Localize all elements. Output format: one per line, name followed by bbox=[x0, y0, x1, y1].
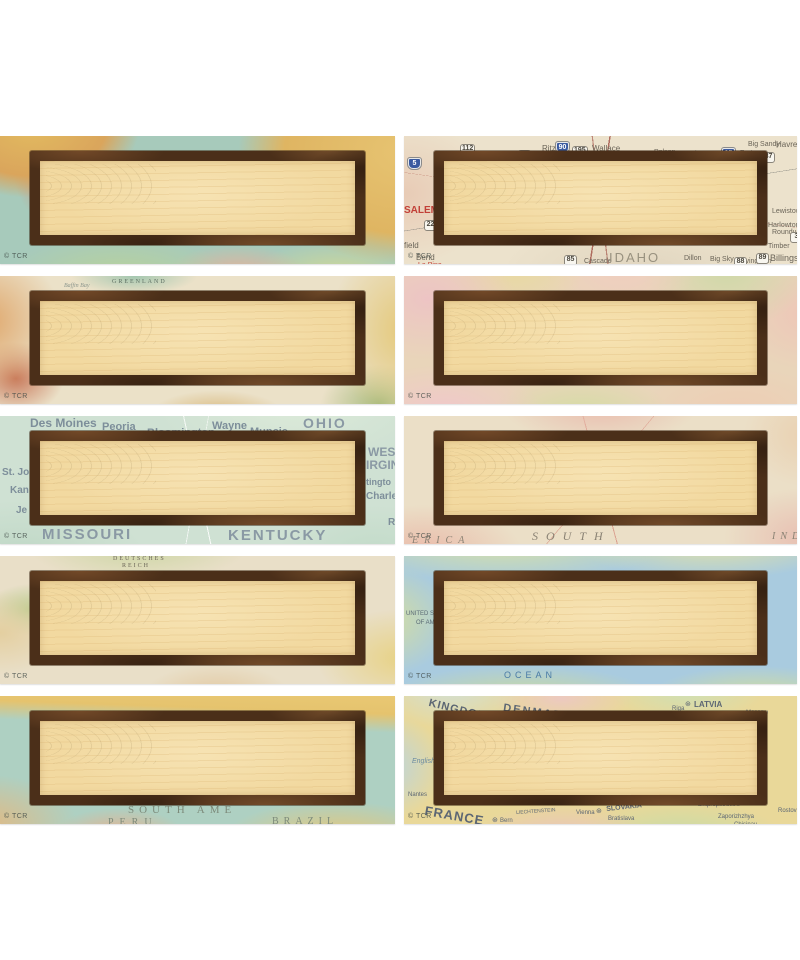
brown-label-frame bbox=[434, 711, 767, 805]
tcr-copyright-mark: © TCR bbox=[408, 253, 432, 260]
map-place-text: SOUTH AME bbox=[128, 805, 236, 816]
tcr-copyright-mark: © TCR bbox=[408, 813, 432, 820]
label-atlas-ocean-map: UNITED STATESOF AMERICAOCEAN© TCR bbox=[404, 556, 797, 684]
map-place-text: ⊛ bbox=[492, 817, 498, 824]
map-place-text: IND bbox=[772, 532, 797, 542]
brown-label-frame bbox=[30, 431, 365, 525]
brown-label-frame bbox=[30, 711, 365, 805]
brown-label-frame bbox=[434, 291, 767, 385]
map-place-text: BRAZIL bbox=[272, 817, 338, 824]
map-place-text: DEUTSCHES bbox=[113, 556, 166, 562]
tcr-copyright-mark: © TCR bbox=[4, 533, 28, 540]
map-place-text: LATVIA bbox=[694, 701, 722, 709]
map-place-text: Vienna bbox=[576, 810, 595, 816]
postmark-arcs-decoration bbox=[46, 724, 156, 764]
map-place-text: REICH bbox=[122, 563, 150, 569]
map-place-text: Billings bbox=[770, 254, 797, 263]
blank-writing-area bbox=[444, 721, 757, 795]
label-vintage-europe-map: DEUTSCHESREICH© TCR bbox=[0, 556, 395, 684]
map-place-text: Timber bbox=[768, 243, 790, 250]
label-vintage-south-america-routes: SOUTHERICAIND© TCR bbox=[404, 416, 797, 544]
map-place-text: Bern bbox=[500, 818, 513, 824]
blank-writing-area bbox=[40, 581, 355, 655]
map-place-text: Des Moines bbox=[30, 417, 97, 429]
label-us-midwest-map: Des MoinesPeoriaBloomingtonWayneMuncieOH… bbox=[0, 416, 395, 544]
map-place-text: Charle bbox=[366, 492, 395, 502]
map-place-text: Harlowton bbox=[768, 222, 797, 229]
map-place-text: SOUTH bbox=[532, 530, 611, 542]
map-place-text: IRGIN bbox=[366, 459, 395, 471]
highway-shield-badge: 85 bbox=[564, 255, 577, 264]
map-place-text: OHIO bbox=[303, 416, 347, 430]
map-place-text: Rostov bbox=[778, 808, 797, 814]
map-place-text: Lewistown bbox=[772, 208, 797, 215]
tcr-copyright-mark: © TCR bbox=[408, 533, 432, 540]
map-place-text: Havre bbox=[776, 141, 797, 149]
tcr-copyright-mark: © TCR bbox=[4, 253, 28, 260]
map-place-text: KENTUCKY bbox=[228, 528, 327, 543]
postmark-arcs-decoration bbox=[450, 444, 560, 484]
blank-writing-area bbox=[40, 301, 355, 375]
map-place-text: IDAHO bbox=[609, 251, 660, 264]
label-modern-europe-map: KINGDOMDENMARKCopenhagenRiga⊛LATVIAMosco… bbox=[404, 696, 797, 824]
highway-shield-badge: 89 bbox=[756, 253, 769, 264]
highway-shield-badge: 3 bbox=[790, 232, 797, 243]
blank-writing-area bbox=[444, 301, 757, 375]
blank-writing-area bbox=[444, 441, 757, 515]
map-place-text: field bbox=[404, 242, 419, 250]
highway-shield-badge: 5 bbox=[408, 158, 421, 169]
map-place-text: St. Jo bbox=[2, 468, 29, 478]
highway-shield-badge: 88 bbox=[734, 257, 747, 264]
map-place-text: La Pine bbox=[418, 262, 442, 264]
map-place-text: Dillon bbox=[684, 255, 702, 262]
map-place-text: Baffin Bay bbox=[64, 283, 90, 289]
map-place-text: Nantes bbox=[408, 792, 427, 798]
label-parchment-world-map-greenland: GREENLANDBaffin Bay© TCR bbox=[0, 276, 395, 404]
postmark-arcs-decoration bbox=[46, 164, 156, 204]
map-place-text: WES bbox=[368, 446, 395, 458]
map-place-text: tingto bbox=[366, 478, 391, 487]
map-place-text: Kan bbox=[10, 486, 29, 496]
brown-label-frame bbox=[30, 571, 365, 665]
map-place-text: LIECHTENSTEIN bbox=[516, 808, 556, 816]
map-place-text: GREENLAND bbox=[112, 279, 167, 285]
map-place-text: FRANCE bbox=[424, 804, 486, 824]
postmark-arcs-decoration bbox=[46, 444, 156, 484]
brown-label-frame bbox=[434, 151, 767, 245]
postmark-arcs-decoration bbox=[450, 164, 560, 204]
tcr-copyright-mark: © TCR bbox=[4, 673, 28, 680]
postmark-arcs-decoration bbox=[450, 724, 560, 764]
brown-label-frame bbox=[434, 431, 767, 525]
label-vintage-south-america-peru-brazil: SOUTH AMEPERUBRAZIL© TCR bbox=[0, 696, 395, 824]
map-place-text: Je bbox=[16, 506, 27, 516]
map-place-text: ⊛ bbox=[596, 808, 602, 815]
map-place-text: PERU bbox=[108, 818, 158, 824]
blank-writing-area bbox=[40, 721, 355, 795]
map-place-text: Chisinau bbox=[734, 822, 757, 824]
tcr-copyright-mark: © TCR bbox=[4, 393, 28, 400]
product-image-map-labels: © TCRRitzvilleWallacePolsonChateauFortBi… bbox=[0, 0, 800, 960]
tcr-copyright-mark: © TCR bbox=[408, 673, 432, 680]
tcr-copyright-mark: © TCR bbox=[408, 393, 432, 400]
map-place-text: R bbox=[388, 518, 395, 528]
map-place-text: OCEAN bbox=[504, 671, 556, 680]
map-place-text: ⊛ bbox=[685, 701, 691, 708]
labels-grid: © TCRRitzvilleWallacePolsonChateauFortBi… bbox=[0, 136, 800, 824]
map-place-text: Zaporizhzhya bbox=[718, 814, 754, 820]
map-place-text: Cascade bbox=[584, 258, 612, 264]
tcr-copyright-mark: © TCR bbox=[4, 813, 28, 820]
label-vintage-south-america-coast: © TCR bbox=[0, 136, 395, 264]
label-us-road-map-idaho: RitzvilleWallacePolsonChateauFortBig San… bbox=[404, 136, 797, 264]
blank-writing-area bbox=[444, 161, 757, 235]
postmark-arcs-decoration bbox=[46, 584, 156, 624]
brown-label-frame bbox=[434, 571, 767, 665]
blank-writing-area bbox=[444, 581, 757, 655]
label-pastel-political-map: © TCR bbox=[404, 276, 797, 404]
postmark-arcs-decoration bbox=[450, 304, 560, 344]
map-place-text: Big Sky bbox=[710, 256, 734, 263]
blank-writing-area bbox=[40, 161, 355, 235]
map-place-text: Bratislava bbox=[608, 816, 634, 822]
brown-label-frame bbox=[30, 291, 365, 385]
brown-label-frame bbox=[30, 151, 365, 245]
postmark-arcs-decoration bbox=[46, 304, 156, 344]
blank-writing-area bbox=[40, 441, 355, 515]
postmark-arcs-decoration bbox=[450, 584, 560, 624]
map-place-text: MISSOURI bbox=[42, 527, 132, 542]
